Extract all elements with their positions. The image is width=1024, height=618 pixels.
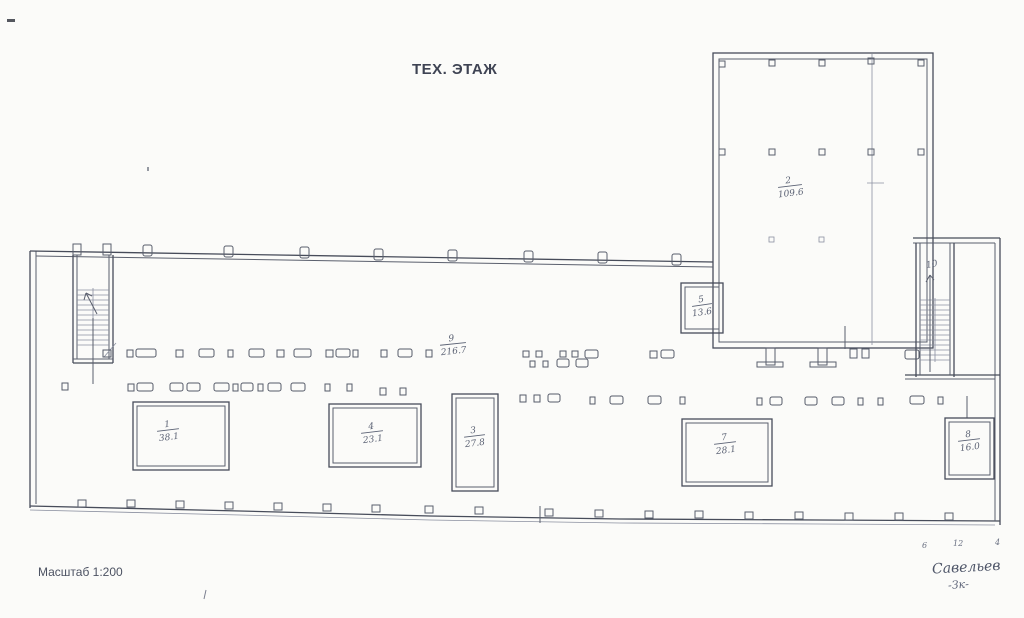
room-2-label: 2 109.6 (776, 174, 805, 200)
room-area: 38.1 (158, 432, 179, 444)
room-number: 8 (965, 430, 972, 441)
room-area: 27.8 (463, 438, 485, 451)
room-number: 1 (164, 420, 171, 431)
plan-title: ТЕХ. ЭТАЖ (412, 61, 497, 78)
room-7-label: 7 28.1 (713, 432, 738, 458)
left-stairwell (73, 255, 116, 384)
room-number: 5 (698, 295, 705, 306)
room-5: 5 13.6 (681, 283, 723, 333)
room-7: 7 28.1 (682, 419, 772, 486)
room-area: 23.1 (361, 434, 383, 446)
room-4-label: 4 23.1 (360, 421, 385, 447)
right-stairwell-label: 10 (925, 259, 938, 271)
room-area: 216.7 (439, 346, 467, 359)
room-5-label: 5 13.6 (690, 294, 714, 320)
room-2-large-hall: 2 109.6 (713, 53, 933, 367)
corridor-equipment-row-upper (103, 349, 674, 367)
building-outline (30, 238, 1000, 525)
corridor-label: 9 216.7 (438, 333, 467, 359)
room-area: 13.6 (692, 307, 714, 320)
right-stairwell: 10 (916, 243, 954, 377)
room-number: 7 (721, 433, 728, 444)
room-number: 4 (367, 422, 375, 433)
room-8: 8 16.0 (945, 418, 994, 479)
scale-label: Масштаб 1:200 (38, 565, 123, 579)
room-area: 28.1 (714, 445, 736, 457)
signature: Савельев -Зк- (932, 558, 1001, 592)
room-3-label: 3 27.8 (462, 425, 487, 451)
dimension-mark: 12 (953, 539, 963, 548)
room-number: 9 (448, 334, 455, 345)
dimension-mark: 6 (922, 541, 927, 550)
signature-flourish: -Зк- (948, 578, 970, 592)
room-1-label: 1 38.1 (156, 419, 181, 445)
dimension-mark: 4 (994, 538, 1000, 547)
corridor-equipment-row-lower (62, 350, 943, 405)
room-2-columns (719, 58, 924, 242)
signature-name: Савельев (932, 558, 1001, 578)
room-1: 1 38.1 (133, 402, 229, 470)
room-8-label: 8 16.0 (957, 429, 982, 455)
room-area: 109.6 (777, 187, 804, 200)
dimension-marks: 6 12 4 (922, 538, 1000, 550)
room-number: 3 (470, 426, 477, 437)
room-area: 16.0 (959, 442, 980, 454)
room-3: 3 27.8 (452, 394, 498, 491)
room-2-piers (757, 326, 869, 367)
stair-treads (920, 298, 950, 362)
stair-direction-arrow (84, 293, 97, 384)
scanned-floorplan-page: ТЕХ. ЭТАЖ 2 109.6 (0, 0, 1024, 618)
room-number: 2 (784, 176, 792, 187)
room-number: 10 (925, 259, 938, 271)
room-4: 4 23.1 (329, 404, 421, 467)
floorplan-svg: ТЕХ. ЭТАЖ 2 109.6 (0, 0, 1024, 618)
